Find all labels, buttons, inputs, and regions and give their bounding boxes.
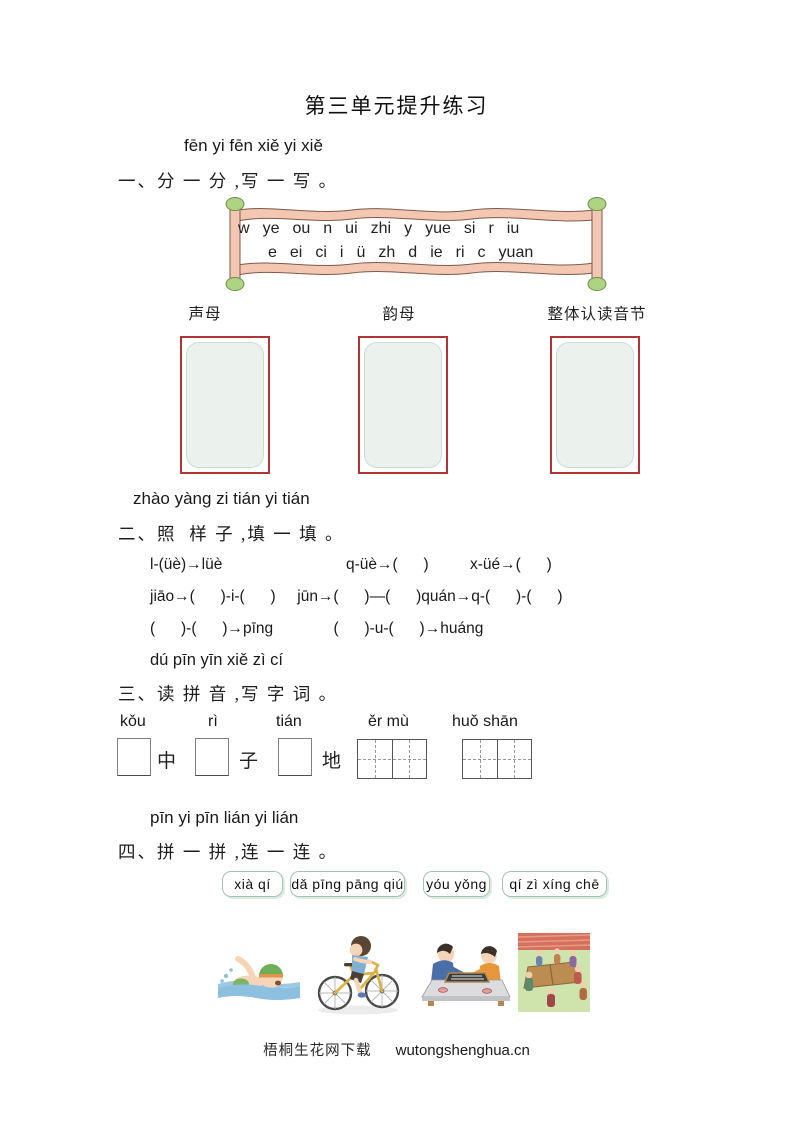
worksheet-page: 第三单元提升练习 fēn yi fēn xiě yi xiě 一、分 一 分 ,… xyxy=(0,0,793,1122)
swimming-image[interactable] xyxy=(216,934,302,1010)
fill-blank-row[interactable]: ( )-( )→pīng ( )-u-( )→huáng xyxy=(150,620,483,638)
pinyin-letter: zh xyxy=(378,244,395,262)
fill-blank-row[interactable]: jiāo→( )-i-( ) jūn→( )—( )quán→q-( )-( ) xyxy=(150,588,563,606)
word-pinyin: huǒ shān xyxy=(452,713,518,731)
word-pinyin: ěr mù xyxy=(368,713,409,731)
pinyin-letter: ie xyxy=(430,244,442,262)
pinyin-letter: ü xyxy=(356,244,365,262)
section3-pinyin-intro: dú pīn yīn xiě zì cí xyxy=(150,651,283,670)
footer-site-url: wutongshenghua.cn xyxy=(396,1042,530,1059)
scroll-pinyin-row2: e ei ci i ü zh d ie ri c yuan xyxy=(268,244,533,262)
word-pinyin: kǒu xyxy=(120,713,146,731)
grid-divider-line xyxy=(392,740,393,778)
tianzige-write-grid[interactable] xyxy=(462,739,532,779)
given-character: 地 xyxy=(322,746,341,773)
pinyin-letter: d xyxy=(408,244,417,262)
scroll-pinyin-row1: w ye ou n ui zhi y yue si r iu xyxy=(238,220,519,238)
grid-dashed-line xyxy=(514,740,515,778)
pinyin-letter: ri xyxy=(456,244,465,262)
word-pinyin: tián xyxy=(276,713,302,731)
pinyin-letter: ci xyxy=(315,244,327,262)
pinyin-letter: zhi xyxy=(371,220,391,238)
pinyin-letter: yuan xyxy=(499,244,534,262)
grid-dashed-line xyxy=(480,740,481,778)
playing-board-game-image[interactable] xyxy=(420,934,512,1010)
answer-box-whole-syllables[interactable] xyxy=(550,336,640,474)
section1-heading: 一、分 一 分 ,写 一 写 。 xyxy=(118,168,338,193)
section3-heading: 三、读 拼 音 ,写 字 词 。 xyxy=(118,681,338,706)
word-pinyin: rì xyxy=(208,713,218,731)
page-title: 第三单元提升练习 xyxy=(0,90,793,120)
riding-bicycle-image[interactable] xyxy=(312,926,404,1018)
grid-dashed-line xyxy=(375,740,376,778)
section4-heading: 四、拼 一 拼 ,连 一 连 。 xyxy=(118,839,338,864)
match-tag-qizixingche[interactable]: qí zì xíng chē xyxy=(502,871,607,897)
section2-heading: 二、照 样 子 ,填 一 填 。 xyxy=(118,521,345,546)
match-tag-xiaqi[interactable]: xià qí xyxy=(222,871,283,897)
grid-dashed-line xyxy=(409,740,410,778)
given-character: 子 xyxy=(239,746,258,773)
pinyin-letter: r xyxy=(488,220,493,238)
answer-box-initials[interactable] xyxy=(180,336,270,474)
character-write-box[interactable] xyxy=(278,738,312,776)
fill-blank-item[interactable]: q-üè→( ) xyxy=(346,556,429,574)
pinyin-letter: si xyxy=(464,220,476,238)
pinyin-letter: yue xyxy=(425,220,451,238)
answer-box-finals[interactable] xyxy=(358,336,448,474)
grid-divider-line xyxy=(497,740,498,778)
footer-site-name: 梧桐生花网下载 xyxy=(263,1039,372,1060)
fill-blank-item[interactable]: x-üé→( ) xyxy=(470,556,552,574)
page-footer: 梧桐生花网下载 wutongshenghua.cn xyxy=(0,1039,793,1060)
pinyin-letter: iu xyxy=(507,220,519,238)
fill-example: l-(üè)→lüè xyxy=(150,556,222,574)
pinyin-letter: c xyxy=(478,244,486,262)
match-tag-youyong[interactable]: yóu yǒng xyxy=(423,871,490,897)
category-label-finals: 韵母 xyxy=(382,302,415,324)
category-label-initials: 声母 xyxy=(188,302,221,324)
pinyin-letter: w xyxy=(238,220,250,238)
pinyin-letter: ye xyxy=(263,220,280,238)
pinyin-letter: ei xyxy=(290,244,302,262)
match-tag-dapingpangqiu[interactable]: dǎ pīng pāng qiú xyxy=(290,871,405,897)
answer-box-inner xyxy=(364,342,442,468)
pinyin-letter: e xyxy=(268,244,277,262)
section1-pinyin-intro: fēn yi fēn xiě yi xiě xyxy=(184,136,323,156)
pinyin-letter: y xyxy=(404,220,412,238)
pinyin-letter: n xyxy=(323,220,332,238)
tianzige-write-grid[interactable] xyxy=(357,739,427,779)
pinyin-letter: ou xyxy=(292,220,310,238)
pinyin-letter: i xyxy=(340,244,344,262)
character-write-box[interactable] xyxy=(117,738,151,776)
pinyin-scroll-banner: w ye ou n ui zhi y yue si r iu e ei ci i… xyxy=(222,196,610,292)
section2-pinyin-intro: zhào yàng zi tián yi tián xyxy=(133,489,310,509)
playing-table-tennis-image[interactable] xyxy=(517,927,591,1015)
given-character: 中 xyxy=(157,746,176,773)
answer-box-inner xyxy=(186,342,264,468)
pinyin-letter: ui xyxy=(345,220,357,238)
character-write-box[interactable] xyxy=(195,738,229,776)
section4-pinyin-intro: pīn yi pīn lián yi lián xyxy=(150,808,298,828)
answer-box-inner xyxy=(556,342,634,468)
category-label-whole-syllables: 整体认读音节 xyxy=(547,302,646,324)
